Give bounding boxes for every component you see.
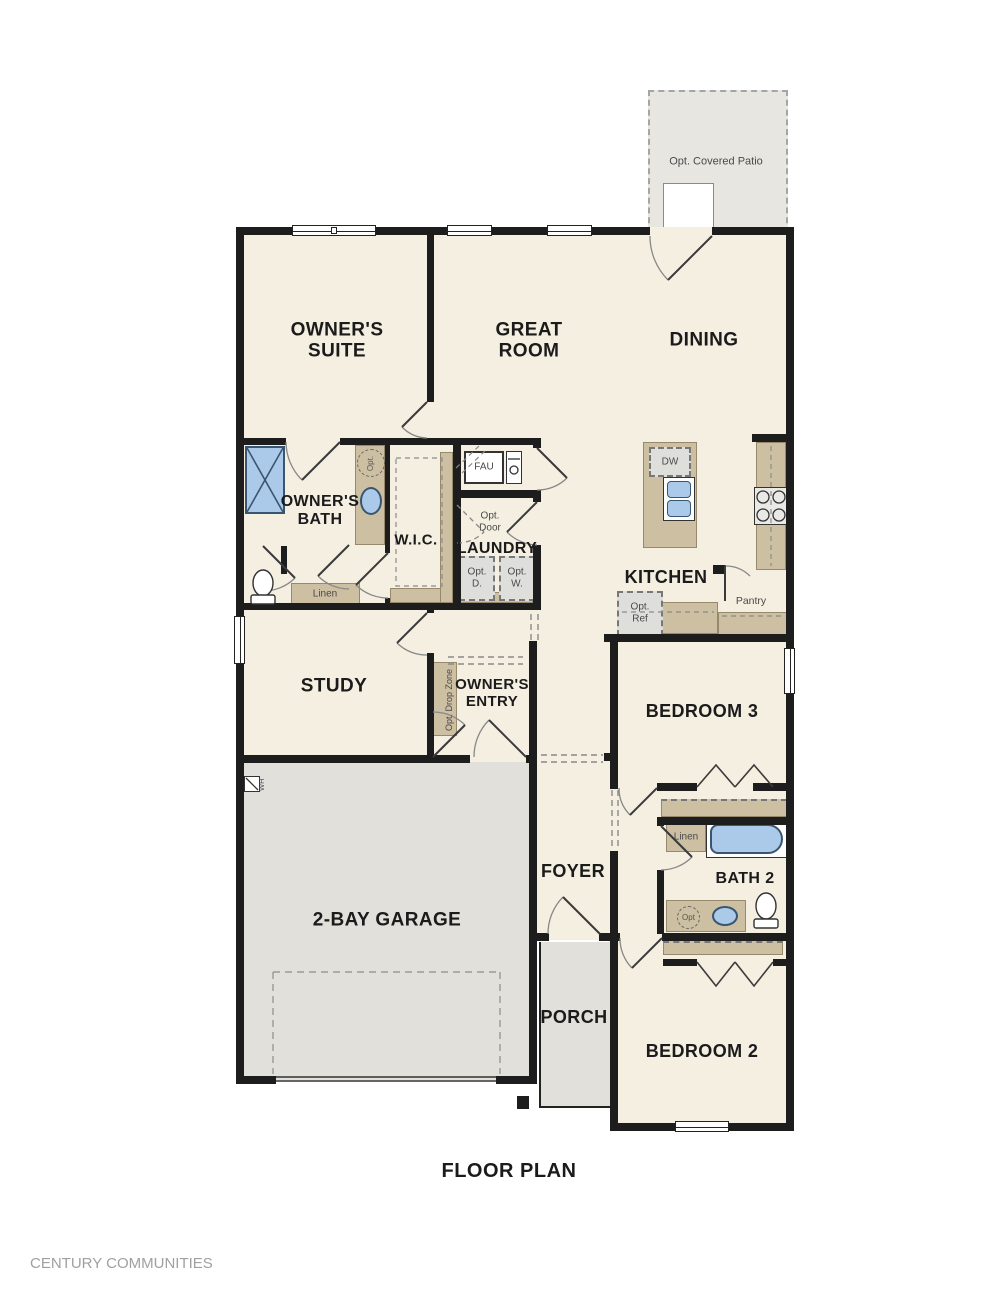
wall-garage-bottom-a — [236, 1076, 276, 1084]
wall-wic-laundry — [453, 438, 461, 603]
bedroom3-closet-shelf — [661, 799, 787, 817]
wall-suite-bottom-b — [340, 438, 541, 445]
label-great-room: GREAT ROOM — [479, 320, 579, 363]
wall-suite-bottom-a — [236, 438, 286, 445]
pantry-counter — [718, 612, 788, 636]
label-garage: 2-BAY GARAGE — [297, 909, 477, 930]
wall-garage-bottom-b — [496, 1076, 536, 1084]
wall-bed2-left — [610, 940, 618, 1131]
label-opt-owners: Opt. — [367, 455, 376, 470]
sheet-title: FLOOR PLAN — [399, 1160, 619, 1182]
window-mullion-tick — [331, 227, 337, 234]
wall-foyer-front-a — [533, 933, 549, 941]
label-kitchen: KITCHEN — [611, 567, 721, 587]
cooktop — [754, 487, 788, 525]
wall-bath2-bottom-b — [662, 933, 794, 941]
wall-suite-divider — [427, 227, 434, 402]
wall-laundry-right-a — [533, 438, 541, 448]
label-porch: PORCH — [529, 1007, 619, 1027]
label-opt-covered-patio: Opt. Covered Patio — [666, 156, 766, 169]
wall-bed2-closet-b — [773, 959, 794, 966]
label-owners-suite: OWNER'S SUITE — [272, 320, 402, 363]
label-opt-drop-zone: Opt. Drop Zone — [445, 664, 459, 736]
wic-shelf-bottom — [390, 588, 441, 603]
sink-bath2 — [712, 906, 738, 926]
window-study — [234, 616, 245, 664]
wall-kitchen-bottom — [604, 634, 794, 642]
wall-study-right-a — [427, 603, 434, 613]
wall-bed2-closet-a — [663, 959, 697, 966]
wall-bed3-closet-b — [753, 783, 794, 791]
label-opt-ref: Opt. Ref — [624, 602, 656, 625]
wall-toilet-stub — [281, 546, 287, 574]
label-linen-owners: Linen — [305, 588, 345, 600]
wall-vanity-wic-b — [385, 598, 390, 606]
opt-sink-circle-bath2: Opt — [677, 906, 700, 929]
water-softener-unit — [506, 451, 522, 484]
wall-study-garage-a — [236, 755, 470, 763]
wall-laundry-right-b — [533, 490, 541, 502]
label-water-heater: WH — [258, 777, 267, 793]
company-name: CENTURY COMMUNITIES — [30, 1254, 213, 1273]
bedroom2-floor — [613, 940, 790, 1130]
window-bedroom2 — [675, 1121, 729, 1132]
label-bedroom3: BEDROOM 3 — [637, 701, 767, 721]
window-bedroom3 — [784, 648, 795, 694]
label-bedroom2: BEDROOM 2 — [637, 1041, 767, 1061]
wall-fau-bottom — [453, 490, 541, 498]
kitchen-sink-basin-top — [667, 481, 691, 498]
wall-left — [236, 227, 244, 762]
wall-bath2-left-b — [657, 870, 664, 934]
label-pantry: Pantry — [726, 595, 776, 607]
wall-bed2-bottom-b — [728, 1123, 794, 1131]
label-bath2: BATH 2 — [715, 870, 775, 888]
window-great-room-2 — [547, 225, 592, 236]
patio-stoop — [663, 183, 714, 232]
label-linen-bath2: Linen — [666, 831, 706, 843]
label-wic: W.I.C. — [381, 533, 451, 550]
wic-shelf-right — [440, 452, 453, 603]
porch-post — [517, 1096, 529, 1109]
window-great-room-1 — [447, 225, 492, 236]
title-block: CENTURY COMMUNITIES 1869 TRAVIS REV 2021… — [30, 1216, 213, 1294]
bedroom2-closet-shelf — [663, 941, 783, 955]
label-owners-bath: OWNER'S BATH — [270, 493, 370, 529]
wall-bath2-left-a — [657, 817, 664, 826]
label-opt-door: Opt. Door — [470, 511, 510, 534]
wall-counter-stub-top — [752, 434, 794, 442]
wall-bed2-bottom-a — [613, 1123, 676, 1131]
floor-plan-sheet: OWNER'S SUITE GREAT ROOM DINING OWNER'S … — [0, 0, 1000, 1294]
wall-study-right-b — [427, 653, 434, 763]
label-study: STUDY — [284, 675, 384, 696]
label-opt-washer: Opt. W. — [502, 567, 532, 590]
label-foyer: FOYER — [528, 861, 618, 881]
label-laundry: LAUNDRY — [442, 540, 552, 558]
kitchen-sink-basin-bottom — [667, 500, 691, 517]
wall-garage-right — [529, 755, 537, 1084]
label-dishwasher: DW — [655, 456, 685, 468]
label-opt-bath2: Opt — [682, 913, 695, 922]
label-fau: FAU — [464, 461, 504, 473]
patio-door-gap — [650, 227, 712, 236]
wall-bed3-closet-a — [657, 783, 697, 791]
wall-closet-bath2 — [657, 817, 794, 825]
label-opt-dryer: Opt. D. — [462, 567, 492, 590]
wall-hall-a — [610, 634, 618, 789]
tub-bath2 — [710, 824, 783, 854]
label-dining: DINING — [644, 329, 764, 350]
opt-sink-circle-owners: Opt. — [357, 449, 385, 477]
wall-garage-left — [236, 755, 244, 1084]
